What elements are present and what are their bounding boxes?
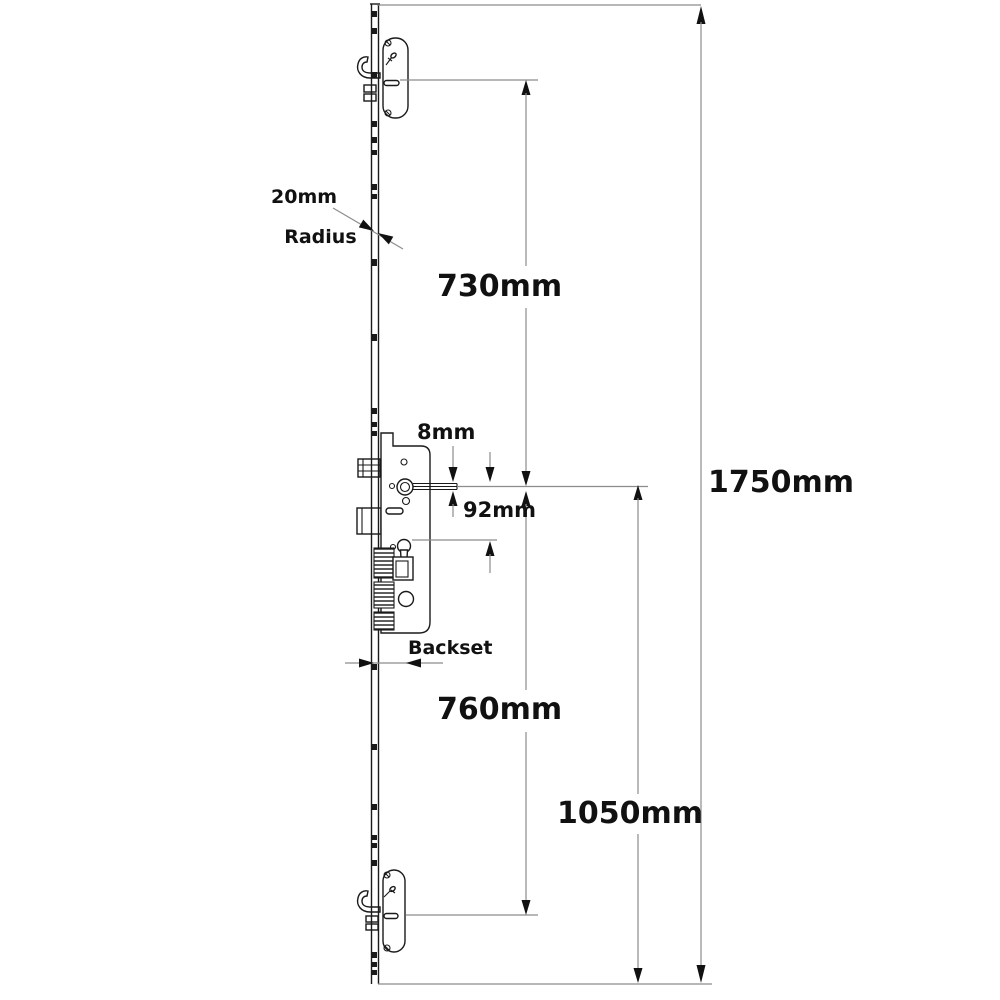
radius-label: 20mm Radius [271,188,357,248]
dim-1750-label: 1750mm [708,467,854,499]
gearbox-spring-hatch [374,548,394,630]
top-hook-assembly [383,38,408,118]
deadbolt [357,508,381,534]
dim-1750-line [697,6,706,983]
dim-92mm-label: 92mm [463,499,536,521]
dim-1050-label: 1050mm [557,798,703,830]
backset-label: Backset [408,639,492,659]
top-hook-bolt [358,57,380,101]
bottom-hook-assembly [383,870,405,952]
radius-label-line1: 20mm [271,186,337,208]
faceplate-strip [370,4,380,984]
dim-1050-line [634,485,643,983]
latch-bolt [358,459,380,477]
backset-dimension [345,659,443,668]
dim-730-label: 730mm [437,271,562,303]
bottom-hook-bolt [358,891,380,930]
dim-8mm-arrows [449,446,458,517]
lock-dimension-diagram: 20mm Radius 730mm 1750mm 8mm 92mm Backse… [0,0,1000,1000]
faceplate-screw-ticks [372,11,377,975]
radius-label-line2: Radius [284,226,356,248]
center-gearbox [374,433,457,633]
dim-760-label: 760mm [437,694,562,726]
dim-8mm-label: 8mm [417,421,475,443]
